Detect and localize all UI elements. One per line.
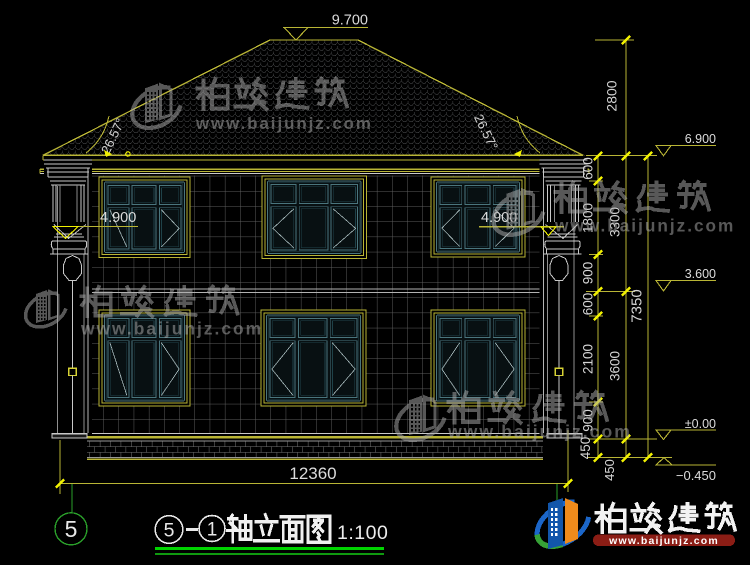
svg-text:2100: 2100 — [581, 344, 596, 374]
svg-text:9.700: 9.700 — [332, 13, 368, 29]
svg-text:www.baijunjz.com: www.baijunjz.com — [447, 422, 632, 442]
svg-text:www.baijunjz.com: www.baijunjz.com — [608, 535, 719, 547]
svg-text:2800: 2800 — [604, 80, 620, 111]
svg-text:www.baijunjz.com: www.baijunjz.com — [554, 216, 735, 236]
svg-text:6.900: 6.900 — [685, 132, 716, 146]
svg-text:−0.450: −0.450 — [676, 468, 716, 483]
svg-text:600: 600 — [581, 157, 596, 180]
svg-text:4.900: 4.900 — [100, 210, 136, 226]
svg-text:1: 1 — [207, 520, 218, 541]
svg-text:±0.00: ±0.00 — [685, 417, 716, 431]
svg-text:450: 450 — [602, 459, 617, 481]
svg-text:www.baijunjz.com: www.baijunjz.com — [195, 114, 373, 133]
svg-text:900: 900 — [581, 262, 596, 285]
svg-text:600: 600 — [581, 293, 596, 316]
svg-text:5: 5 — [164, 520, 175, 542]
svg-text:12360: 12360 — [289, 464, 336, 483]
svg-text:3.600: 3.600 — [685, 267, 716, 281]
svg-text:1:100: 1:100 — [337, 522, 388, 544]
svg-text:www.baijunjz.com: www.baijunjz.com — [80, 319, 263, 339]
svg-text:3600: 3600 — [608, 351, 623, 381]
svg-text:7350: 7350 — [629, 289, 646, 322]
svg-text:5: 5 — [65, 516, 78, 542]
